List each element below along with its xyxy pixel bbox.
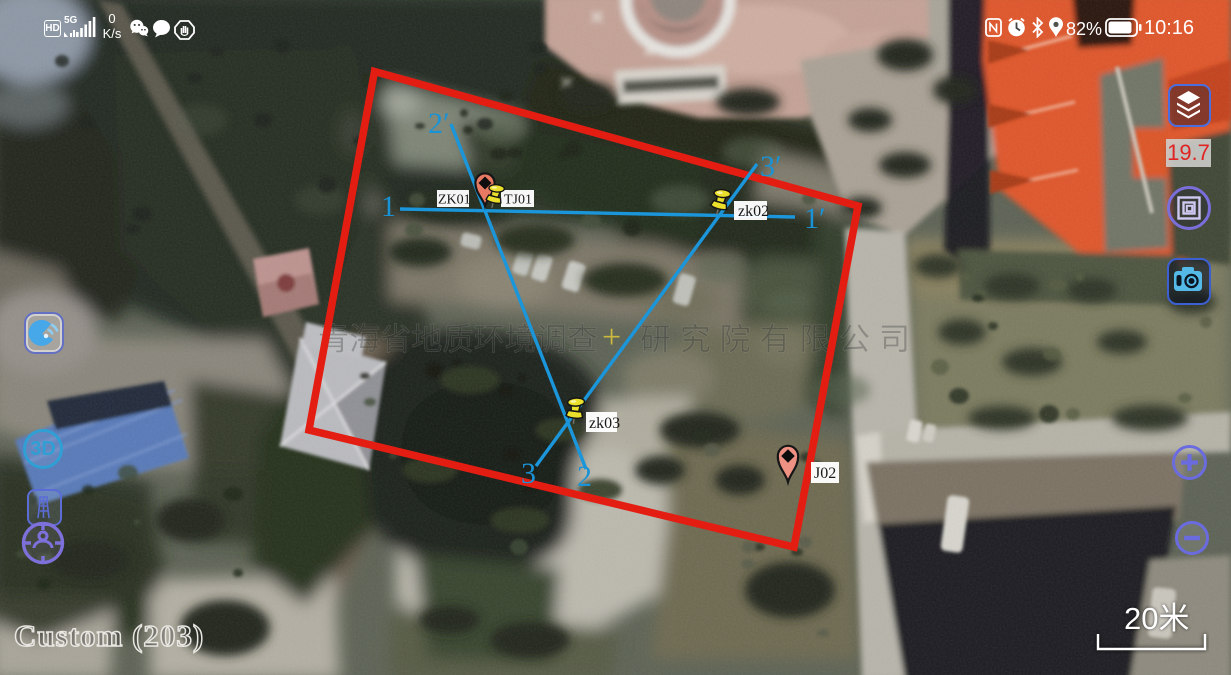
svg-text:+: + bbox=[602, 319, 621, 356]
svg-text:2′: 2′ bbox=[428, 107, 450, 140]
svg-text:3′: 3′ bbox=[760, 150, 782, 183]
svg-text:2: 2 bbox=[577, 460, 592, 493]
svg-text:研究院有限公司: 研究院有限公司 bbox=[640, 322, 910, 357]
svg-text:ZK01: ZK01 bbox=[438, 193, 471, 208]
svg-text:1′: 1′ bbox=[804, 202, 826, 235]
svg-text:zk03: zk03 bbox=[589, 415, 620, 432]
svg-text:3: 3 bbox=[521, 457, 536, 490]
svg-text:TJ01: TJ01 bbox=[504, 193, 532, 208]
svg-text:青海省地质环境调查: 青海省地质环境调查 bbox=[318, 322, 598, 357]
svg-text:zk02: zk02 bbox=[738, 203, 769, 220]
svg-text:1: 1 bbox=[381, 190, 396, 223]
svg-text:J02: J02 bbox=[814, 465, 836, 482]
